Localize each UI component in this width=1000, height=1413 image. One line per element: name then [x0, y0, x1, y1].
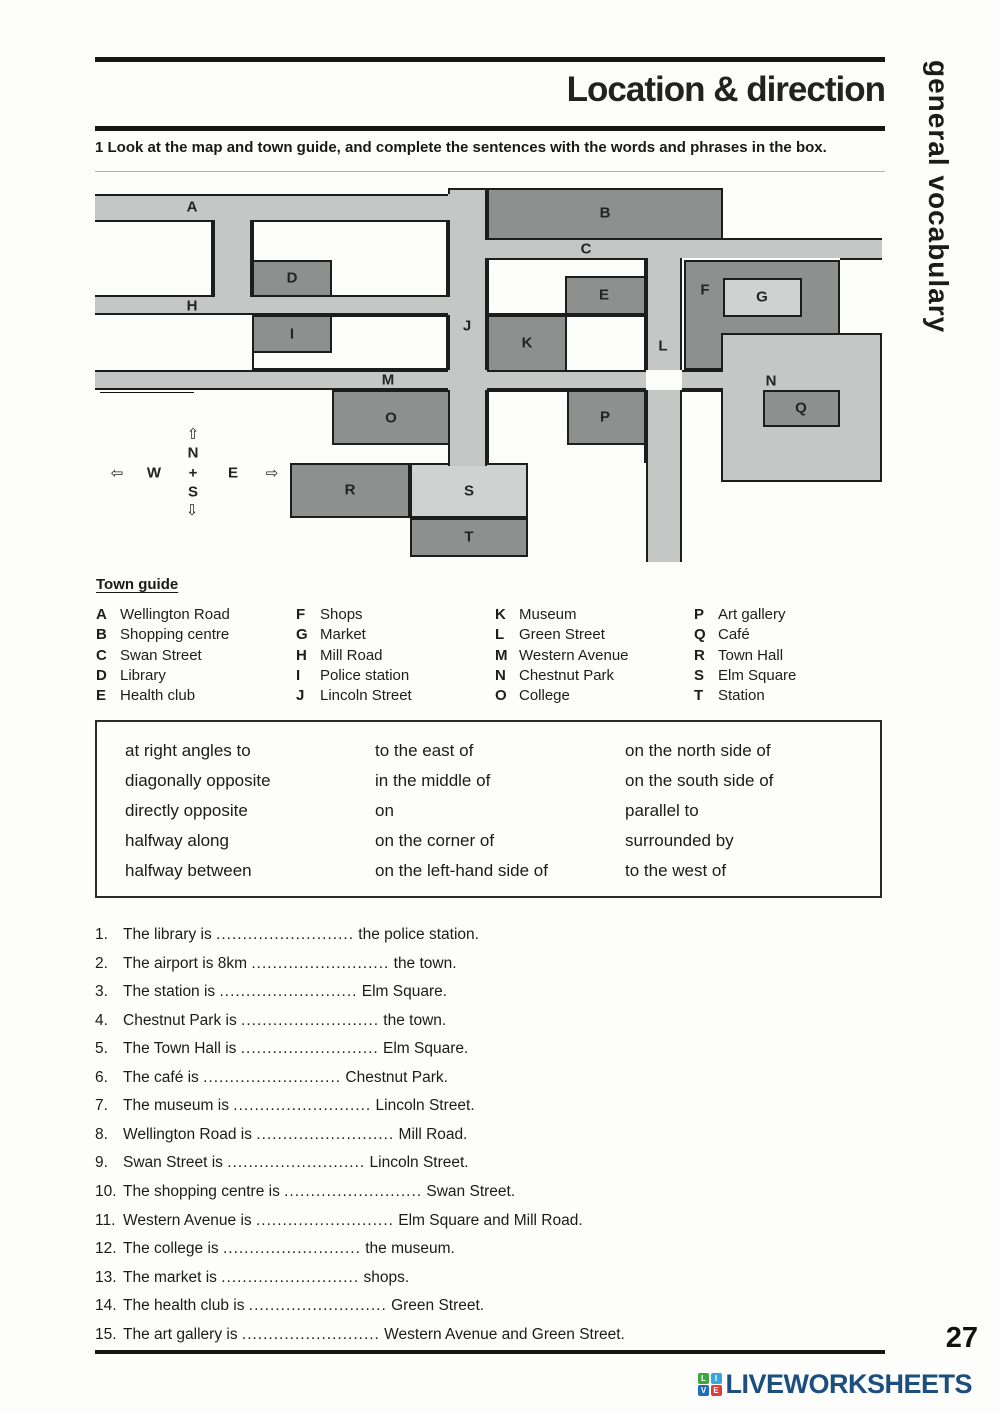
- sentence-item: 8.Wellington Road is ...................…: [95, 1126, 467, 1144]
- compass-center-cross: +: [189, 465, 198, 482]
- town-guide-column: KMuseumLGreen StreetMWestern AvenueNChes…: [495, 606, 629, 707]
- phrase-item: on the corner of: [375, 826, 548, 856]
- sentence-text-before: The library is: [123, 926, 216, 943]
- sentence-number: 4.: [95, 1012, 123, 1030]
- town-guide-key: Q: [694, 626, 718, 643]
- town-guide-entry: KMuseum: [495, 606, 629, 626]
- sentence-item: 7.The museum is ........................…: [95, 1097, 475, 1115]
- town-guide-key: J: [296, 687, 320, 704]
- liveworksheets-logo-icon: LIVE: [698, 1373, 722, 1397]
- map-street-lincoln: [448, 194, 487, 220]
- sentence-number: 6.: [95, 1069, 123, 1087]
- town-guide-entry: FShops: [296, 606, 412, 626]
- town-guide-entry: EHealth club: [96, 687, 230, 707]
- answer-blank[interactable]: ..........................: [216, 926, 354, 943]
- sentence-text-before: Chestnut Park is: [123, 1012, 241, 1029]
- town-guide-entry: TStation: [694, 687, 796, 707]
- logo-square-L: L: [698, 1373, 709, 1384]
- sentence-text-before: The airport is 8km: [123, 955, 251, 972]
- phrase-item: halfway between: [125, 856, 271, 886]
- town-guide-entry: SElm Square: [694, 667, 796, 687]
- phrase-item: to the west of: [625, 856, 773, 886]
- phrase-item: on the left-hand side of: [375, 856, 548, 886]
- answer-blank[interactable]: ..........................: [233, 1097, 371, 1114]
- title-bottom-rule: [95, 126, 885, 131]
- town-guide-entry: JLincoln Street: [296, 687, 412, 707]
- sentence-text-after: Swan Street.: [422, 1183, 515, 1200]
- town-guide-entry: NChestnut Park: [495, 667, 629, 687]
- answer-blank[interactable]: ..........................: [227, 1154, 365, 1171]
- sentence-item: 4.Chestnut Park is .....................…: [95, 1012, 446, 1030]
- town-guide-key: R: [694, 647, 718, 664]
- town-guide-key: G: [296, 626, 320, 643]
- sentence-text-before: The market is: [123, 1269, 221, 1286]
- phrase-column: to the east ofin the middle ofonon the c…: [375, 736, 548, 886]
- answer-blank[interactable]: ..........................: [220, 983, 358, 1000]
- answer-blank[interactable]: ..........................: [203, 1069, 341, 1086]
- instruction-divider: [95, 171, 885, 172]
- sentence-item: 1.The library is .......................…: [95, 926, 479, 944]
- phrase-item: at right angles to: [125, 736, 271, 766]
- map-city-block: [95, 220, 213, 297]
- town-guide-key: O: [495, 687, 519, 704]
- map-building-F-arm: [684, 333, 723, 370]
- sentence-item: 3.The station is .......................…: [95, 983, 447, 1001]
- town-guide-entry: GMarket: [296, 626, 412, 646]
- town-guide-entry: PArt gallery: [694, 606, 796, 626]
- sentence-number: 9.: [95, 1154, 123, 1172]
- exercise-instruction: 1 Look at the map and town guide, and co…: [95, 139, 895, 156]
- map-label-S: S: [464, 483, 474, 500]
- town-guide-key: I: [296, 667, 320, 684]
- map-label-O: O: [385, 410, 397, 427]
- compass-east-label: E: [228, 465, 238, 482]
- town-guide-name: Shops: [320, 606, 363, 623]
- town-guide-key: C: [96, 647, 120, 664]
- sentence-number: 12.: [95, 1240, 123, 1258]
- map-label-E: E: [599, 287, 609, 304]
- town-guide-entry: QCafé: [694, 626, 796, 646]
- map-label-N: N: [766, 373, 777, 390]
- town-guide-column: AWellington RoadBShopping centreCSwan St…: [96, 606, 230, 707]
- sentence-text-before: The art gallery is: [123, 1326, 242, 1343]
- map-city-block: [723, 185, 882, 240]
- map-label-T: T: [464, 529, 473, 546]
- phrase-item: directly opposite: [125, 796, 271, 826]
- bottom-rule: [95, 1350, 885, 1354]
- sentence-text-after: Western Avenue and Green Street.: [380, 1326, 625, 1343]
- map-street-lincoln: [448, 240, 487, 258]
- map-street-western-1: [95, 370, 448, 390]
- answer-blank[interactable]: ..........................: [241, 1040, 379, 1057]
- page-title: Location & direction: [95, 70, 885, 110]
- town-guide-entry: HMill Road: [296, 647, 412, 667]
- sentence-text-before: The café is: [123, 1069, 203, 1086]
- map-label-M: M: [382, 372, 395, 389]
- map-label-J: J: [463, 318, 471, 335]
- phrase-item: surrounded by: [625, 826, 773, 856]
- town-guide-name: Library: [120, 667, 166, 684]
- compass-up-arrow-icon: ⇧: [187, 425, 200, 443]
- town-guide-name: Mill Road: [320, 647, 383, 664]
- sentence-text-after: the police station.: [354, 926, 479, 943]
- sentence-number: 11.: [95, 1212, 123, 1230]
- town-guide-name: Police station: [320, 667, 409, 684]
- sentence-item: 12.The college is ......................…: [95, 1240, 455, 1258]
- town-guide-name: Health club: [120, 687, 195, 704]
- map-label-K: K: [522, 335, 533, 352]
- map-label-Q: Q: [795, 400, 807, 417]
- map-street-mill: [95, 297, 448, 315]
- map-label-L: L: [658, 338, 667, 355]
- answer-blank[interactable]: ..........................: [284, 1183, 422, 1200]
- sentence-text-before: The station is: [123, 983, 220, 1000]
- map-label-G: G: [756, 289, 768, 306]
- town-guide-entry: LGreen Street: [495, 626, 629, 646]
- logo-square-E: E: [711, 1385, 722, 1396]
- town-guide-key: L: [495, 626, 519, 643]
- town-guide-key: A: [96, 606, 120, 623]
- map-street-lincoln: [448, 370, 487, 390]
- answer-blank[interactable]: ..........................: [221, 1269, 359, 1286]
- answer-blank[interactable]: ..........................: [256, 1126, 394, 1143]
- section-sidebar-label: general vocabulary: [922, 60, 954, 360]
- sentence-text-before: The museum is: [123, 1097, 233, 1114]
- compass-left-arrow-icon: ⇦: [111, 464, 124, 482]
- phrase-column: at right angles todiagonally oppositedir…: [125, 736, 271, 886]
- sentence-number: 5.: [95, 1040, 123, 1058]
- phrase-item: parallel to: [625, 796, 773, 826]
- sentence-item: 2.The airport is 8km ...................…: [95, 955, 457, 973]
- town-guide-entry: AWellington Road: [96, 606, 230, 626]
- sentence-item: 13.The market is .......................…: [95, 1269, 409, 1287]
- map-label-P: P: [600, 409, 610, 426]
- town-guide-key: N: [495, 667, 519, 684]
- town-guide-key: K: [495, 606, 519, 623]
- map-street-wellington: [95, 194, 448, 220]
- town-guide-key: S: [694, 667, 718, 684]
- sentence-number: 2.: [95, 955, 123, 973]
- sentence-text-after: the town.: [389, 955, 456, 972]
- map-street-connector: [213, 220, 252, 297]
- phrase-item: on the south side of: [625, 766, 773, 796]
- sentence-text-before: Western Avenue is: [123, 1212, 256, 1229]
- sentence-item: 14.The health club is ..................…: [95, 1297, 484, 1315]
- town-guide-key: M: [495, 647, 519, 664]
- sentence-text-after: Elm Square.: [379, 1040, 469, 1057]
- town-guide-name: Café: [718, 626, 750, 643]
- town-guide-name: Art gallery: [718, 606, 786, 623]
- town-guide-key: P: [694, 606, 718, 623]
- liveworksheets-logo[interactable]: LIVE LIVEWORKSHEETS: [698, 1369, 972, 1400]
- town-guide-heading: Town guide: [96, 576, 178, 593]
- sentence-text-after: Green Street.: [387, 1297, 484, 1314]
- sentence-text-before: Swan Street is: [123, 1154, 227, 1171]
- town-guide-column: PArt galleryQCaféRTown HallSElm SquareTS…: [694, 606, 796, 707]
- sentence-item: 9.Swan Street is .......................…: [95, 1154, 469, 1172]
- town-guide-key: F: [296, 606, 320, 623]
- map-street-lincoln: [448, 297, 487, 315]
- map-street-lincoln: [448, 390, 487, 466]
- map-label-D: D: [287, 270, 298, 287]
- town-guide-name: Wellington Road: [120, 606, 230, 623]
- map-label-H: H: [187, 298, 198, 315]
- town-guide-name: Station: [718, 687, 765, 704]
- sentence-text-before: The health club is: [123, 1297, 249, 1314]
- page-number: 27: [900, 1322, 978, 1355]
- town-guide-name: Museum: [519, 606, 577, 623]
- answer-blank[interactable]: ..........................: [241, 1012, 379, 1029]
- town-guide-name: Lincoln Street: [320, 687, 412, 704]
- map-street-green-2: [646, 390, 682, 562]
- town-guide-name: Green Street: [519, 626, 605, 643]
- sentence-text-after: the town.: [379, 1012, 446, 1029]
- compass-south-label: S: [188, 484, 198, 501]
- town-guide-key: T: [694, 687, 718, 704]
- map-label-C: C: [581, 241, 592, 258]
- town-guide-key: B: [96, 626, 120, 643]
- town-guide-entry: CSwan Street: [96, 647, 230, 667]
- map-street-swan: [448, 240, 882, 258]
- town-guide-name: Town Hall: [718, 647, 783, 664]
- sentence-text-before: The college is: [123, 1240, 223, 1257]
- sentence-number: 15.: [95, 1326, 123, 1344]
- town-guide-name: Chestnut Park: [519, 667, 614, 684]
- answer-blank[interactable]: ..........................: [256, 1212, 394, 1229]
- town-guide-name: Shopping centre: [120, 626, 229, 643]
- answer-blank[interactable]: ..........................: [251, 955, 389, 972]
- map-label-I: I: [290, 326, 294, 343]
- sentence-number: 1.: [95, 926, 123, 944]
- sentence-text-after: Mill Road.: [394, 1126, 467, 1143]
- map-street-western-3: [682, 370, 723, 390]
- phrase-item: diagonally opposite: [125, 766, 271, 796]
- sentence-number: 14.: [95, 1297, 123, 1315]
- phrase-item: to the east of: [375, 736, 548, 766]
- sentence-item: 11.Western Avenue is ...................…: [95, 1212, 583, 1230]
- town-guide-entry: RTown Hall: [694, 647, 796, 667]
- top-rule: [95, 57, 885, 62]
- sentence-item: 6.The café is ..........................…: [95, 1069, 448, 1087]
- sentence-number: 7.: [95, 1097, 123, 1115]
- town-guide-key: H: [296, 647, 320, 664]
- map-label-B: B: [600, 205, 611, 222]
- answer-blank[interactable]: ..........................: [249, 1297, 387, 1314]
- answer-blank[interactable]: ..........................: [223, 1240, 361, 1257]
- sentence-number: 3.: [95, 983, 123, 1001]
- sentence-number: 8.: [95, 1126, 123, 1144]
- map-label-F: F: [700, 282, 709, 299]
- liveworksheets-logo-text: LIVEWORKSHEETS: [726, 1369, 973, 1400]
- town-guide-name: Swan Street: [120, 647, 202, 664]
- town-guide-name: College: [519, 687, 570, 704]
- town-guide-entry: BShopping centre: [96, 626, 230, 646]
- phrase-column: on the north side ofon the south side of…: [625, 736, 773, 886]
- sentence-item: 5.The Town Hall is .....................…: [95, 1040, 468, 1058]
- phrase-item: halfway along: [125, 826, 271, 856]
- sentence-item: 15.The art gallery is ..................…: [95, 1326, 625, 1344]
- town-guide-entry: DLibrary: [96, 667, 230, 687]
- sentence-number: 13.: [95, 1269, 123, 1287]
- map-city-block: [682, 390, 723, 482]
- answer-blank[interactable]: ..........................: [242, 1326, 380, 1343]
- sentence-text-before: The shopping centre is: [123, 1183, 284, 1200]
- sentence-text-after: Elm Square and Mill Road.: [394, 1212, 583, 1229]
- logo-square-V: V: [698, 1385, 709, 1396]
- sentence-text-after: Elm Square.: [357, 983, 447, 1000]
- sentence-item: 10.The shopping centre is ..............…: [95, 1183, 515, 1201]
- map-street-lincoln: [448, 258, 487, 297]
- sentence-text-after: Lincoln Street.: [371, 1097, 474, 1114]
- map-city-block: [840, 258, 882, 333]
- compass-west-label: W: [147, 465, 161, 482]
- map-label-A: A: [187, 199, 198, 216]
- town-guide-key: E: [96, 687, 120, 704]
- town-guide-entry: IPolice station: [296, 667, 412, 687]
- sentence-text-after: shops.: [359, 1269, 409, 1286]
- map-street-lincoln: [448, 220, 487, 240]
- phrase-item: on the north side of: [625, 736, 773, 766]
- town-map: ⇦ Airport (8km) ⇧ N ⇦ W + E ⇨ S ⇩ ACHJLM…: [95, 185, 882, 562]
- worksheet-page: Location & direction 1 Look at the map a…: [0, 0, 1000, 1413]
- sentence-text-before: Wellington Road is: [123, 1126, 256, 1143]
- phrase-box: at right angles todiagonally oppositedir…: [95, 720, 882, 898]
- town-guide-key: D: [96, 667, 120, 684]
- map-label-R: R: [345, 482, 356, 499]
- logo-square-I: I: [711, 1373, 722, 1384]
- compass-right-arrow-icon: ⇨: [266, 464, 279, 482]
- sentence-number: 10.: [95, 1183, 123, 1201]
- phrase-item: on: [375, 796, 548, 826]
- compass-north-label: N: [188, 445, 199, 462]
- town-guide-name: Market: [320, 626, 366, 643]
- town-guide-name: Western Avenue: [519, 647, 629, 664]
- town-guide-name: Elm Square: [718, 667, 796, 684]
- sentence-text-after: Lincoln Street.: [365, 1154, 468, 1171]
- map-street-western-2: [487, 370, 646, 390]
- phrase-item: in the middle of: [375, 766, 548, 796]
- compass-down-arrow-icon: ⇩: [186, 501, 199, 519]
- sentence-text-after: Chestnut Park.: [341, 1069, 448, 1086]
- sentence-text-after: the museum.: [361, 1240, 455, 1257]
- town-guide-column: FShopsGMarketHMill RoadIPolice stationJL…: [296, 606, 412, 707]
- town-guide-entry: OCollege: [495, 687, 629, 707]
- sentence-text-before: The Town Hall is: [123, 1040, 241, 1057]
- town-guide-entry: MWestern Avenue: [495, 647, 629, 667]
